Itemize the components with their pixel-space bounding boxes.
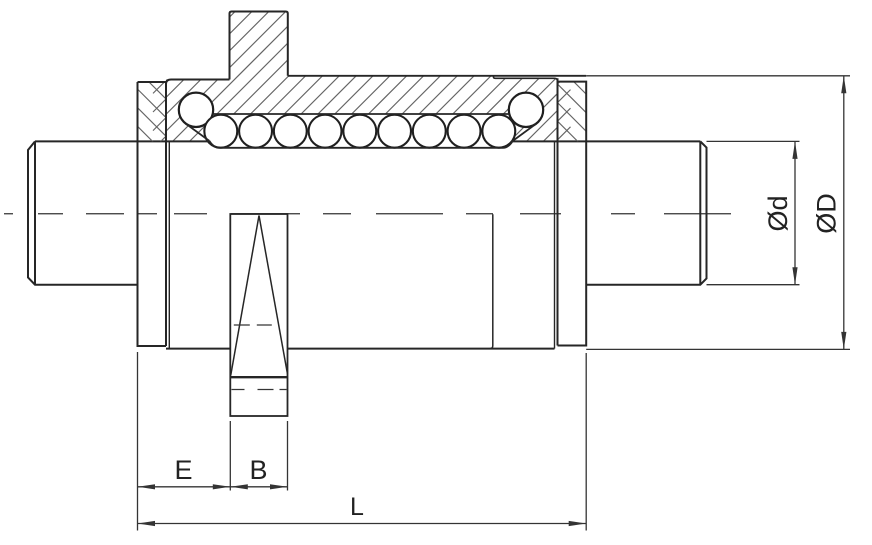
svg-text:L: L: [350, 493, 364, 521]
svg-text:Ød: Ød: [763, 195, 793, 231]
svg-text:B: B: [249, 455, 267, 485]
svg-text:ØD: ØD: [812, 193, 842, 234]
svg-text:E: E: [174, 455, 192, 485]
